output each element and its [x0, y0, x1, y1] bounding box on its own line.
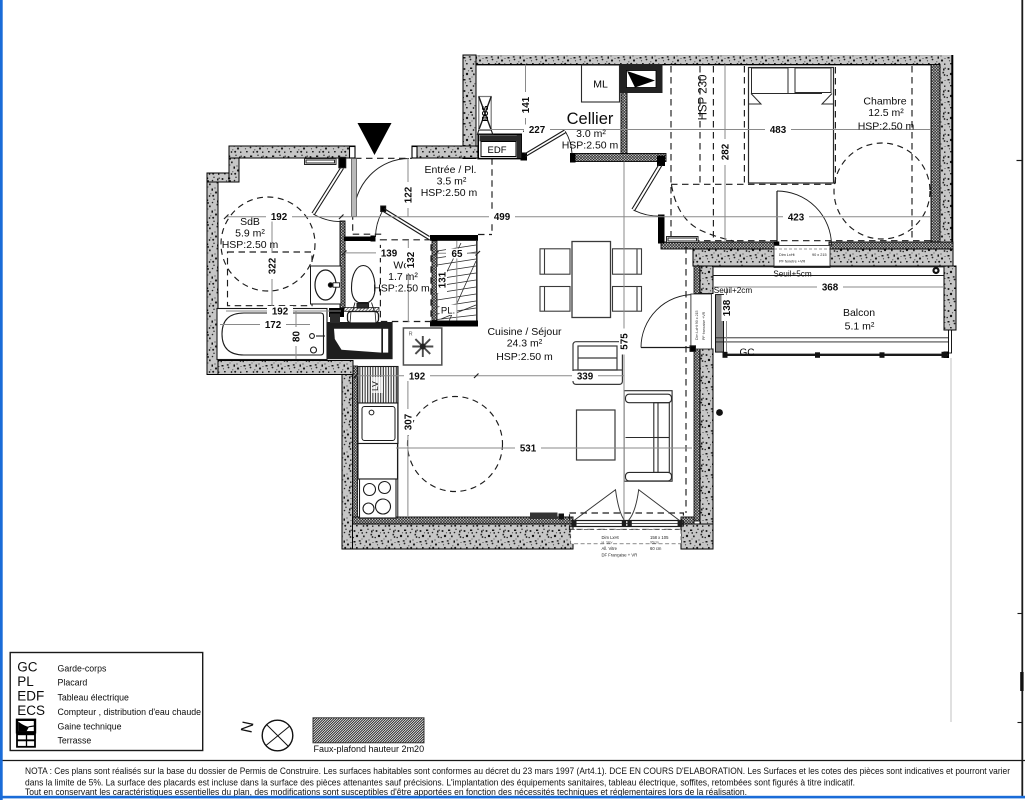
svg-text:HSP:2.50 m: HSP:2.50 m: [421, 187, 478, 199]
svg-text:EDF: EDF: [17, 689, 44, 704]
svg-text:ECS: ECS: [17, 703, 45, 718]
svg-text:Placard: Placard: [58, 678, 88, 688]
svg-text:Garde-corps: Garde-corps: [58, 664, 107, 674]
svg-text:GC: GC: [740, 348, 755, 359]
svg-text:PF fenetre +VR: PF fenetre +VR: [779, 260, 806, 264]
svg-text:ML: ML: [593, 79, 608, 91]
svg-text:dans la limite de 5%. La surfa: dans la limite de 5%. La surface des pla…: [25, 778, 855, 788]
svg-text:Dim LxHt: Dim LxHt: [602, 535, 620, 540]
svg-text:80: 80: [292, 331, 303, 342]
svg-text:3.5 m²: 3.5 m²: [437, 175, 467, 187]
svg-text:483: 483: [770, 125, 787, 136]
svg-text:192: 192: [271, 212, 288, 223]
svg-text:122: 122: [404, 186, 415, 203]
svg-text:H. Strv: H. Strv: [602, 540, 613, 544]
svg-text:HSP:2.50 m: HSP:2.50 m: [222, 239, 279, 251]
svg-text:5.1 m²: 5.1 m²: [845, 321, 875, 333]
svg-text:LV: LV: [370, 381, 380, 391]
svg-text:575: 575: [620, 333, 631, 350]
svg-text:Seuil+2cm: Seuil+2cm: [714, 286, 753, 295]
svg-text:307: 307: [404, 413, 415, 430]
svg-text:65: 65: [452, 249, 463, 260]
svg-text:531: 531: [520, 444, 537, 455]
svg-text:339: 339: [577, 372, 594, 383]
svg-text:EDF: EDF: [488, 145, 507, 156]
svg-text:Cuisine / Séjour: Cuisine / Séjour: [487, 326, 562, 338]
svg-text:HSP:2.50 m: HSP:2.50 m: [562, 140, 619, 152]
svg-text:3.0 m²: 3.0 m²: [576, 128, 606, 140]
svg-text:Compteur , distribution d'eau: Compteur , distribution d'eau chaude: [58, 707, 202, 717]
svg-text:NOTA : Ces plans sont réalisés: NOTA : Ces plans sont réalisés sur la ba…: [25, 766, 1010, 776]
svg-text:PF francaise +VR: PF francaise +VR: [702, 311, 706, 340]
svg-text:322: 322: [268, 257, 279, 274]
svg-text:141: 141: [521, 96, 532, 113]
svg-text:HSP:2.50 m: HSP:2.50 m: [496, 351, 553, 363]
svg-text:Faux-plafond hauteur 2m20: Faux-plafond hauteur 2m20: [314, 744, 425, 754]
svg-text:227: 227: [529, 125, 546, 136]
svg-text:Gaine technique: Gaine technique: [58, 722, 122, 732]
svg-text:90 x 215: 90 x 215: [812, 253, 827, 257]
svg-text:R: R: [409, 332, 413, 338]
svg-text:5.9 m²: 5.9 m²: [235, 228, 265, 240]
svg-text:423: 423: [788, 213, 805, 224]
svg-text:Dim LxHt: Dim LxHt: [779, 253, 796, 257]
svg-text:Dim LxHt 90 x 215: Dim LxHt 90 x 215: [695, 310, 699, 340]
svg-text:499: 499: [494, 212, 511, 223]
svg-text:Tout en conservant les caracté: Tout en conservant les caractéristiques …: [25, 787, 747, 797]
svg-text:131: 131: [438, 271, 449, 288]
svg-text:DF Française + VR: DF Française + VR: [602, 553, 638, 558]
svg-text:24.3 m²: 24.3 m²: [507, 338, 543, 350]
svg-text:HSP:2.50 m: HSP:2.50 m: [858, 121, 915, 133]
svg-text:282: 282: [721, 143, 732, 160]
svg-text:132: 132: [406, 251, 417, 268]
svg-text:12.5 m²: 12.5 m²: [868, 107, 904, 119]
svg-text:GC: GC: [17, 660, 38, 675]
svg-text:Tableau électrique: Tableau électrique: [58, 693, 130, 703]
svg-text:172: 172: [265, 320, 282, 331]
svg-text:HSP 230: HSP 230: [698, 75, 710, 121]
svg-text:PL: PL: [17, 674, 34, 689]
svg-text:192: 192: [409, 372, 426, 383]
svg-text:Balcon: Balcon: [843, 307, 875, 319]
svg-text:PL.: PL.: [441, 306, 455, 317]
svg-text:Terrasse: Terrasse: [58, 736, 92, 746]
svg-text:139: 139: [381, 249, 398, 260]
svg-text:95cm: 95cm: [650, 540, 659, 544]
svg-text:HSP:2.50 m: HSP:2.50 m: [373, 283, 430, 295]
svg-text:Entrée / Pl.: Entrée / Pl.: [425, 164, 477, 176]
svg-text:Chambre: Chambre: [863, 96, 906, 108]
svg-text:368: 368: [822, 283, 839, 294]
svg-text:All. Vitre: All. Vitre: [602, 546, 618, 551]
svg-text:Seuil+5cm: Seuil+5cm: [773, 269, 812, 278]
svg-text:138: 138: [722, 299, 733, 316]
svg-text:158 x 105: 158 x 105: [650, 535, 669, 540]
svg-text:60 cm: 60 cm: [650, 546, 662, 551]
svg-text:Cellier: Cellier: [567, 110, 614, 128]
svg-text:192: 192: [272, 307, 289, 318]
svg-text:SdB: SdB: [240, 216, 260, 228]
svg-text:ECS: ECS: [481, 105, 490, 121]
